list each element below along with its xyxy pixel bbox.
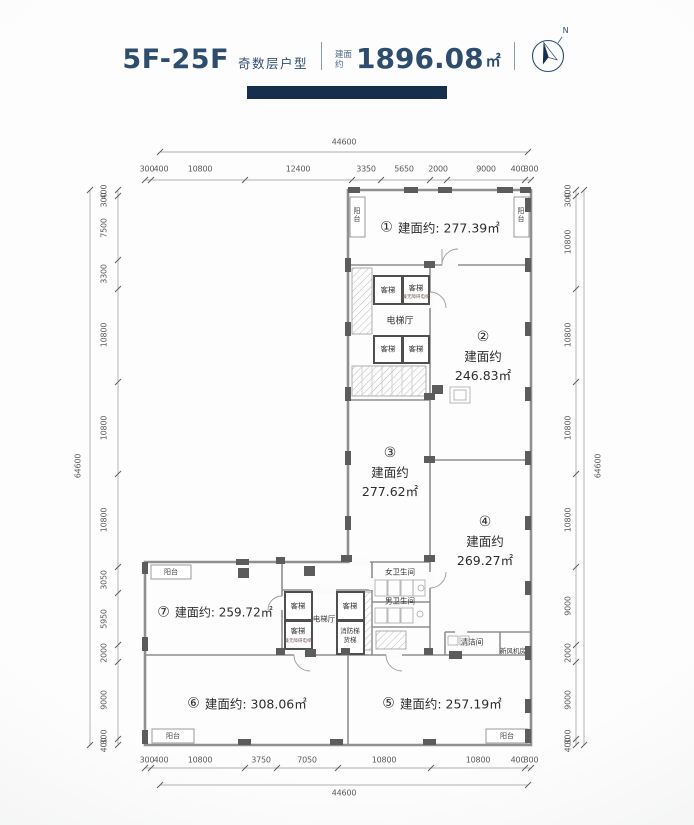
unit-2-area-prefix: 建面约 (464, 348, 502, 367)
room-accessible-note-2: 兼无障碍电梯 (285, 638, 312, 644)
dim-left-7: 3050 (100, 570, 109, 590)
dim-left-8: 5950 (100, 609, 109, 629)
dim-bottom-3: 3750 (251, 756, 271, 765)
unit-7-area: 建面约: 259.72㎡ (175, 604, 273, 621)
dim-right-2: 10800 (564, 230, 573, 254)
dim-top-3: 12400 (286, 165, 310, 174)
dim-top-0: 300 (140, 165, 155, 174)
room-freight-elevator: 货梯 (344, 634, 357, 644)
dim-right-5: 10800 (564, 508, 573, 532)
balcony-boxes (151, 197, 529, 743)
room-passenger-elevator-6: 客梯 (291, 626, 306, 637)
dim-right-6: 9000 (564, 596, 573, 616)
floorplan-page: 5F-25F 奇数层户型 建面约 1896.08 ㎡ N (0, 0, 694, 825)
dim-bottom-2: 10800 (188, 756, 212, 765)
dim-top-6: 2000 (428, 165, 448, 174)
room-passenger-elevator-2: 客梯 (409, 283, 424, 294)
unit-4-label: ④ 建面约 269.27㎡ (457, 512, 513, 571)
unit-6-number: ⑥ (187, 695, 200, 711)
structural-columns (142, 187, 531, 745)
room-elevator-hall-upper: 电梯厅 (386, 314, 413, 327)
unit-4-area: 269.27㎡ (457, 552, 513, 571)
dim-left-4: 10800 (100, 323, 109, 347)
balcony-label-unit7: 阳台 (164, 567, 178, 577)
room-passenger-elevator-3: 客梯 (381, 344, 396, 355)
room-womens-restroom: 女卫生间 (385, 567, 415, 578)
dim-bottom-total: 44600 (332, 789, 356, 798)
balcony-label-top-right: 阳台 (516, 207, 526, 223)
dim-right-3: 10800 (564, 323, 573, 347)
unit-2-number: ② (477, 327, 490, 348)
room-cleaning-room: 清洁间 (461, 637, 484, 648)
dim-right-1: 300 (564, 193, 573, 208)
dim-right-4: 10800 (564, 416, 573, 440)
unit-1-label: ① 建面约: 277.39㎡ (380, 218, 500, 237)
dim-left-9: 2000 (100, 643, 109, 663)
unit-3-area: 277.62㎡ (362, 483, 418, 502)
dim-left-12: 400 (100, 738, 109, 753)
room-passenger-elevator-5: 客梯 (291, 601, 306, 612)
dim-bottom-1: 400 (154, 756, 169, 765)
unit-3-number: ③ (384, 443, 397, 464)
dim-bottom-8: 300 (524, 756, 539, 765)
dim-left-1: 300 (100, 193, 109, 208)
unit-3-label: ③ 建面约 277.62㎡ (362, 443, 418, 502)
dim-right-8: 9000 (564, 690, 573, 710)
unit-1-number: ① (380, 219, 393, 235)
unit-4-number: ④ (479, 512, 492, 533)
dim-top-4: 3350 (356, 165, 376, 174)
dim-top-2: 10800 (188, 165, 212, 174)
dim-left-3: 3300 (100, 264, 109, 284)
dim-left-2: 7500 (100, 218, 109, 238)
dim-right-10: 400 (564, 738, 573, 753)
unit-6-area: 建面约: 308.06㎡ (205, 694, 307, 713)
balcony-label-unit5: 阳台 (500, 731, 514, 741)
dim-bottom-5: 10800 (372, 756, 396, 765)
unit-3-area-prefix: 建面约 (371, 464, 409, 483)
dim-left-6: 10800 (100, 508, 109, 532)
dim-left-total: 64600 (74, 454, 83, 478)
dim-top-7: 9000 (476, 165, 496, 174)
dimension-lines (90, 152, 584, 785)
dim-top-total: 44600 (332, 138, 356, 147)
dim-right-total: 64600 (594, 454, 603, 478)
room-accessible-note-1: 兼无障碍电梯 (403, 294, 430, 300)
unit-2-area: 246.83㎡ (455, 367, 511, 386)
unit-1-area: 建面约: 277.39㎡ (398, 218, 500, 237)
unit-4-area-prefix: 建面约 (466, 533, 504, 552)
unit-5-label: ⑤ 建面约: 257.19㎡ (382, 694, 502, 713)
room-passenger-elevator-4: 客梯 (409, 344, 424, 355)
room-passenger-elevator-7: 客梯 (343, 601, 358, 612)
dimension-ticks (87, 149, 587, 788)
room-elevator-hall-lower: 电梯厅 (313, 614, 336, 625)
dim-bottom-0: 300 (140, 756, 155, 765)
dim-left-10: 9000 (100, 690, 109, 710)
room-fresh-air-room: 新风机房 (500, 645, 526, 655)
unit-5-area: 建面约: 257.19㎡ (400, 694, 502, 713)
dim-top-5: 5650 (394, 165, 414, 174)
unit-7-label: ⑦ 建面约: 259.72㎡ (157, 604, 272, 621)
unit-2-label: ② 建面约 246.83㎡ (455, 327, 511, 386)
unit-6-label: ⑥ 建面约: 308.06㎡ (187, 694, 307, 713)
dim-left-5: 10800 (100, 416, 109, 440)
dim-bottom-6: 10800 (466, 756, 490, 765)
dim-bottom-4: 7050 (297, 756, 317, 765)
dim-right-7: 2000 (564, 643, 573, 663)
balcony-label-unit6: 阳台 (166, 731, 180, 741)
unit-7-number: ⑦ (157, 604, 170, 620)
room-mens-restroom: 男卫生间 (385, 596, 415, 607)
unit-5-number: ⑤ (382, 695, 395, 711)
room-passenger-elevator-1: 客梯 (381, 285, 396, 296)
dim-top-9: 300 (524, 165, 539, 174)
dim-top-1: 400 (154, 165, 169, 174)
balcony-label-top-left: 阳台 (352, 207, 362, 223)
building-walls (145, 190, 531, 745)
